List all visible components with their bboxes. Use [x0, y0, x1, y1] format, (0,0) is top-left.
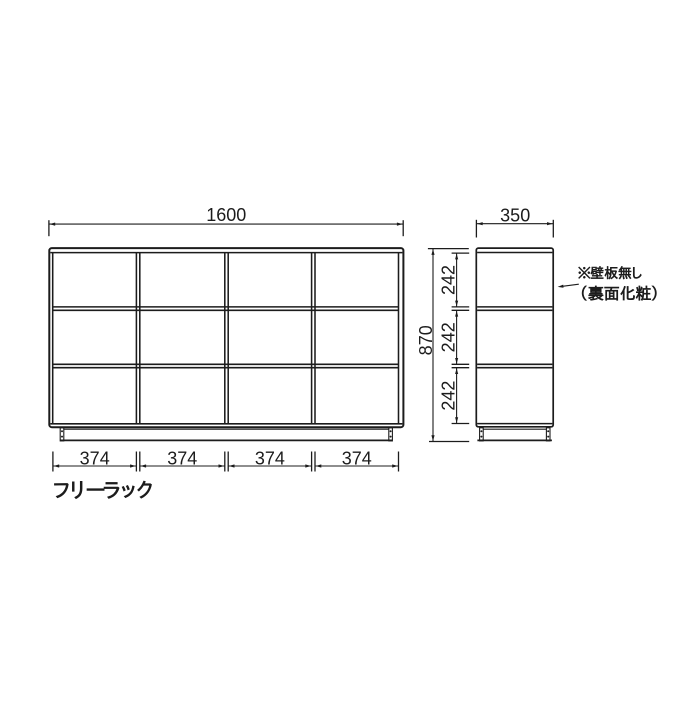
svg-text:1600: 1600 [206, 205, 246, 225]
svg-text:242: 242 [439, 381, 459, 411]
svg-text:374: 374 [255, 449, 285, 469]
svg-text:242: 242 [439, 265, 459, 295]
svg-text:374: 374 [342, 449, 372, 469]
svg-text:374: 374 [80, 449, 110, 469]
svg-text:350: 350 [500, 205, 530, 225]
svg-text:242: 242 [439, 322, 459, 352]
svg-text:374: 374 [167, 449, 197, 469]
svg-text:870: 870 [416, 325, 436, 355]
